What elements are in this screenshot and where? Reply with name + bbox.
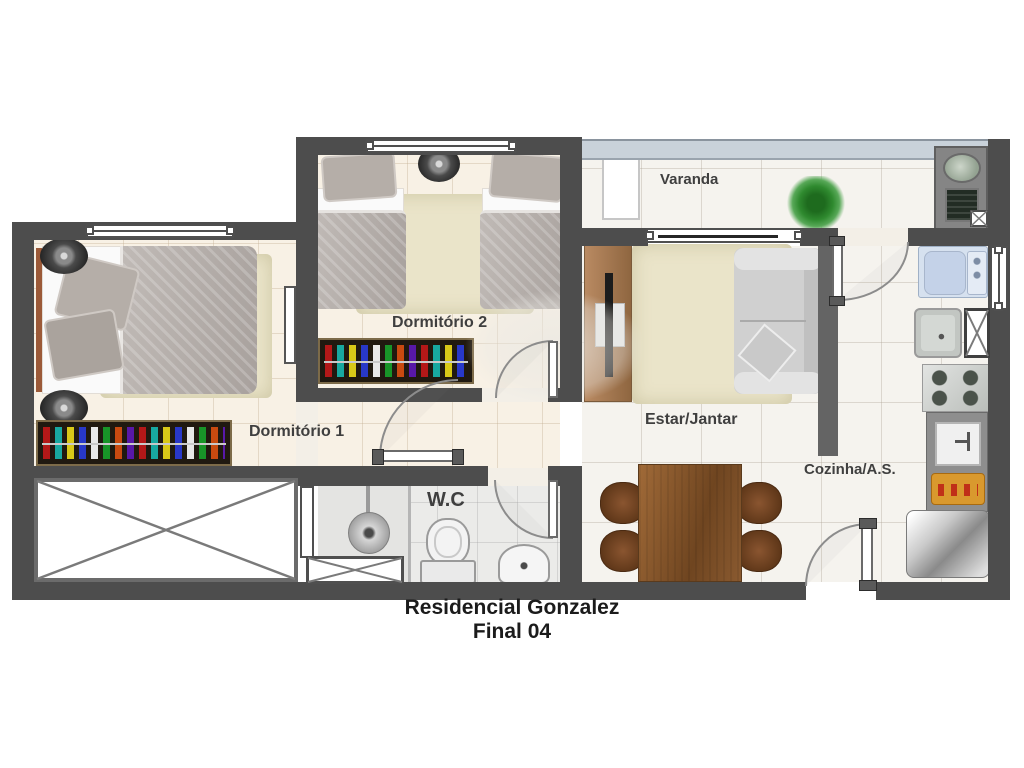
room-label-varanda: Varanda xyxy=(660,171,718,188)
balcony-railing xyxy=(582,139,988,160)
shaft-duct-icon xyxy=(964,308,990,358)
shower-partition xyxy=(408,486,411,582)
entrance-door-leaf xyxy=(861,524,873,586)
ceiling-lamp xyxy=(40,238,88,274)
counter-sink xyxy=(943,153,981,183)
door-hinge xyxy=(829,236,845,246)
washer-panel xyxy=(967,251,987,295)
room-label-cozinha: Cozinha/A.S. xyxy=(804,461,896,478)
dining-chair xyxy=(736,530,782,572)
wall-niche xyxy=(284,286,296,364)
wall xyxy=(560,228,648,246)
sofa-cushion-divider xyxy=(740,320,806,322)
closet-rail xyxy=(42,443,226,445)
sofa-armrest xyxy=(734,372,822,394)
vent-duct-icon xyxy=(970,210,988,227)
toilet xyxy=(420,518,476,584)
door-leaf xyxy=(548,341,558,398)
floor-varanda xyxy=(582,160,988,228)
sliding-door xyxy=(646,228,802,243)
window xyxy=(990,246,1008,310)
wall xyxy=(560,468,582,600)
dining-chair xyxy=(736,482,782,524)
door-leaf xyxy=(548,480,558,538)
washer-lid xyxy=(924,251,966,295)
door-hinge xyxy=(452,449,464,465)
sofa-armrest xyxy=(734,248,822,270)
sofa xyxy=(734,248,822,394)
wc-sink xyxy=(498,544,550,584)
floor-plan: Varanda Dormitório 2 Dormitório 1 Estar/… xyxy=(0,0,1024,768)
balcony-table xyxy=(602,156,640,220)
washing-machine xyxy=(918,246,988,298)
door-hinge xyxy=(859,580,877,591)
door-hinge xyxy=(859,518,877,529)
door-swing-arc xyxy=(806,524,868,586)
room-label-wc: W.C xyxy=(427,489,465,512)
wc-shaft-door xyxy=(300,486,314,558)
door-swing-arc xyxy=(838,242,908,300)
bed-pillow xyxy=(43,308,125,382)
toilet-seat xyxy=(434,526,462,558)
bed-pillow xyxy=(488,151,566,203)
dining-table xyxy=(638,464,742,582)
dish-rack xyxy=(931,473,985,505)
kitchen-counter xyxy=(926,412,988,512)
laundry-tank xyxy=(914,308,962,358)
window xyxy=(86,224,234,238)
void-area-icon xyxy=(34,478,298,582)
plan-title-line1: Residencial Gonzalez xyxy=(0,596,1024,620)
wall xyxy=(560,137,582,400)
wall xyxy=(296,137,318,402)
wall xyxy=(12,222,34,600)
potted-plant xyxy=(786,176,846,230)
shower-head xyxy=(348,512,390,554)
door-swing-arc xyxy=(380,380,458,458)
plan-title-line2: Final 04 xyxy=(0,620,1024,644)
bed-pillow xyxy=(320,151,397,202)
door-swing-arc xyxy=(495,480,553,538)
kitchen-sink xyxy=(935,422,981,466)
door-leaf xyxy=(832,242,843,300)
single-bed xyxy=(312,148,408,306)
faucet-icon xyxy=(967,432,970,451)
door-hinge xyxy=(372,449,384,465)
room-label-estar: Estar/Jantar xyxy=(645,411,738,429)
wall xyxy=(988,139,1010,600)
wc-vent-box-icon xyxy=(306,556,404,584)
tank-basin xyxy=(921,315,955,351)
window xyxy=(366,139,516,153)
room-label-dormitorio1: Dormitório 1 xyxy=(249,423,344,441)
toilet-tank xyxy=(420,560,476,584)
refrigerator xyxy=(906,510,990,578)
door-hinge xyxy=(829,296,845,306)
door-swing-arc xyxy=(496,341,553,398)
wardrobe xyxy=(36,420,232,466)
room-label-dormitorio2: Dormitório 2 xyxy=(392,314,487,332)
stove xyxy=(922,364,990,412)
door-leaf xyxy=(380,450,458,462)
